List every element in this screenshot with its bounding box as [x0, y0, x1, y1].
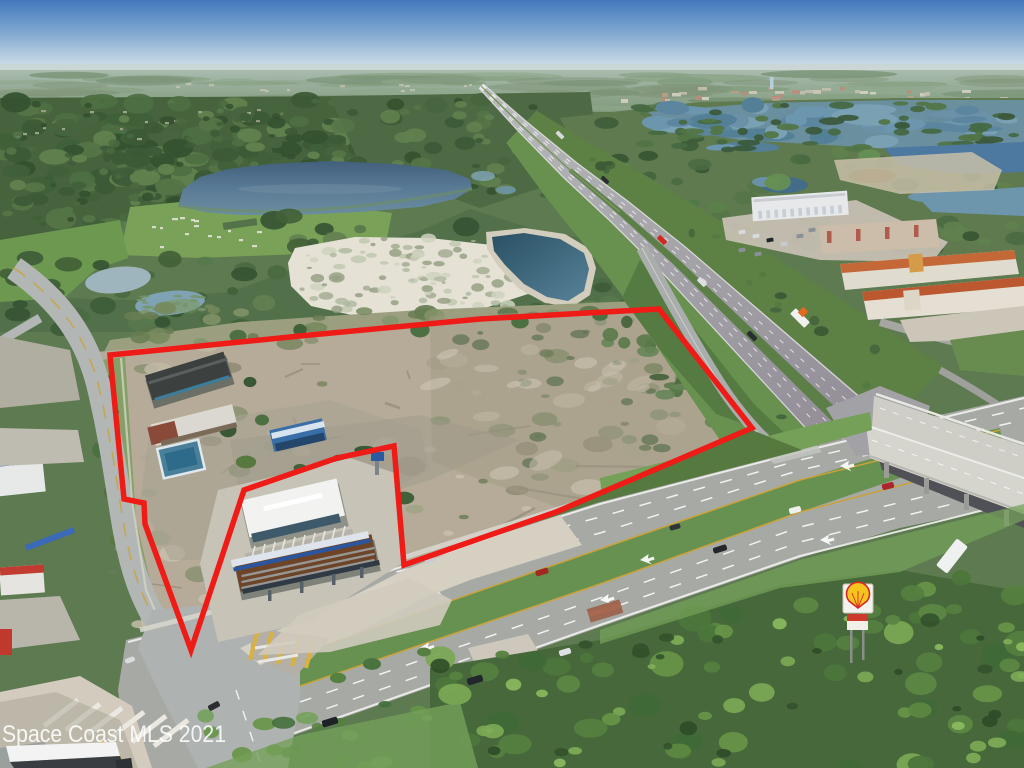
svg-text:Space Coast MLS 2021: Space Coast MLS 2021	[2, 721, 226, 748]
